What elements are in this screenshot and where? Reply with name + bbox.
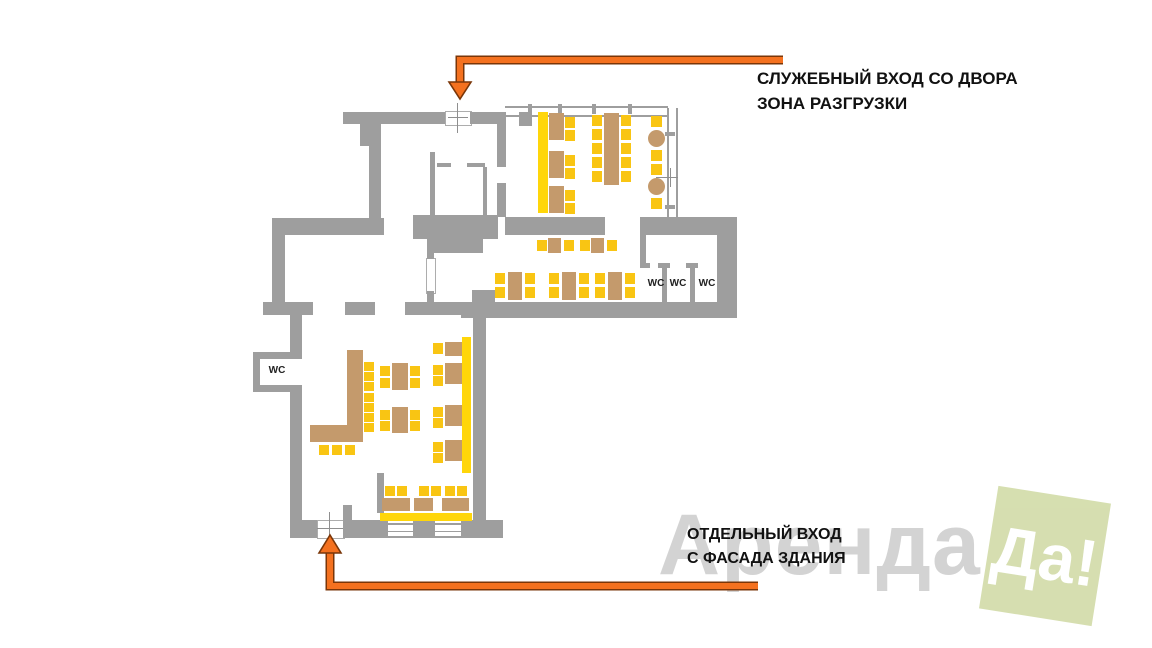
window	[435, 523, 461, 538]
wall-segment	[343, 520, 388, 538]
wall-segment	[343, 112, 445, 124]
chair-seat	[592, 157, 602, 168]
wall-segment	[497, 183, 506, 217]
dining-table	[549, 186, 564, 213]
wall-segment	[290, 520, 317, 538]
window	[388, 523, 413, 538]
dining-table	[445, 363, 462, 384]
chair-seat	[380, 366, 390, 376]
bar-counter	[310, 425, 363, 442]
dining-table	[549, 151, 564, 178]
chair-seat	[621, 157, 631, 168]
dining-table	[549, 113, 564, 140]
wall-segment	[369, 146, 381, 218]
separate-entrance-label: ОТДЕЛЬНЫЙ ВХОД С ФАСАДА ЗДАНИЯ	[687, 523, 846, 571]
main-entrance-door	[317, 520, 345, 539]
chair-seat	[564, 240, 574, 251]
wall-segment	[437, 163, 451, 167]
wall-segment	[427, 239, 483, 253]
chair-seat	[579, 273, 589, 284]
chair-seat	[380, 421, 390, 431]
chair-seat	[625, 287, 635, 298]
service-door	[445, 111, 472, 126]
dining-table	[445, 405, 462, 426]
wall-segment	[413, 520, 435, 538]
main-entrance-door-cross	[315, 528, 345, 529]
chair-seat	[385, 486, 395, 496]
chair-seat	[445, 486, 455, 496]
chair-seat	[621, 143, 631, 154]
wall-segment	[717, 235, 737, 302]
chair-seat	[565, 190, 575, 201]
chair-seat	[621, 129, 631, 140]
dining-table	[392, 363, 408, 390]
chair-seat	[565, 203, 575, 214]
chair-seat	[433, 453, 443, 463]
chair-seat	[651, 116, 662, 127]
bar-stool	[364, 362, 374, 371]
chair-seat	[397, 486, 407, 496]
dining-table	[548, 238, 561, 253]
dining-table	[591, 238, 604, 253]
wall-segment	[519, 112, 532, 126]
wall-segment	[472, 290, 495, 302]
glass-door-mark	[670, 168, 671, 187]
wc-label: WC	[253, 365, 301, 376]
bar-stool	[319, 445, 329, 455]
chair-seat	[525, 273, 535, 284]
chair-seat	[592, 129, 602, 140]
chair-seat	[651, 164, 662, 175]
wall-segment	[290, 385, 302, 538]
wall-segment	[253, 385, 301, 392]
chair-seat	[410, 366, 420, 376]
bar-stool	[364, 382, 374, 391]
chair-seat	[419, 486, 429, 496]
wc-label: WC	[644, 278, 668, 289]
dining-table	[445, 342, 462, 356]
chair-seat	[651, 198, 662, 209]
chair-seat	[433, 365, 443, 375]
wall-segment	[435, 302, 461, 315]
service-entrance-label: СЛУЖЕБНЫЙ ВХОД СО ДВОРА ЗОНА РАЗГРУЗКИ	[757, 66, 1018, 116]
wall-segment	[470, 112, 500, 124]
main-entrance-door-cross	[329, 512, 330, 547]
chair-seat	[565, 130, 575, 141]
chair-seat	[495, 287, 505, 298]
service-door-cross	[457, 103, 458, 133]
bar-stool	[345, 445, 355, 455]
wall-segment	[345, 302, 375, 315]
chair-seat	[433, 376, 443, 386]
wall-segment	[483, 167, 487, 215]
chair-seat	[380, 378, 390, 388]
wall-segment	[505, 217, 605, 235]
wall-segment	[272, 218, 384, 235]
glass-mullion-tick	[592, 104, 596, 114]
round-table	[648, 178, 665, 195]
dining-table	[508, 272, 522, 300]
dining-table	[604, 113, 619, 185]
chair-seat	[549, 287, 559, 298]
service-door-cross	[448, 117, 468, 118]
chair-seat	[525, 287, 535, 298]
wall-segment	[427, 253, 434, 259]
separate-entrance-label-line2: С ФАСАДА ЗДАНИЯ	[687, 547, 846, 571]
chair-seat	[595, 287, 605, 298]
chair-seat	[380, 410, 390, 420]
wall-segment	[461, 302, 737, 318]
chair-seat	[537, 240, 547, 251]
wall-segment	[405, 302, 435, 315]
bar-counter	[347, 350, 363, 427]
chair-seat	[433, 407, 443, 417]
separate-entrance-label-line1: ОТДЕЛЬНЫЙ ВХОД	[687, 523, 846, 547]
bar-stool	[332, 445, 342, 455]
bar-stool	[364, 403, 374, 412]
bar-stool	[364, 372, 374, 381]
dining-table	[382, 498, 410, 511]
chair-seat	[410, 378, 420, 388]
banquette-seat	[380, 513, 472, 521]
dining-table	[392, 407, 408, 433]
wall-segment	[427, 291, 434, 302]
chair-seat	[431, 486, 441, 496]
glass-mullion-tick	[628, 104, 632, 114]
glass-mullion-tick	[665, 205, 675, 209]
chair-seat	[592, 171, 602, 182]
wall-segment	[430, 152, 435, 215]
interior-door	[426, 258, 436, 294]
chair-seat	[433, 343, 443, 354]
glass-mullion-tick	[665, 132, 675, 136]
service-entrance-label-line1: СЛУЖЕБНЫЙ ВХОД СО ДВОРА	[757, 66, 1018, 91]
wc-label: WC	[666, 278, 690, 289]
bar-stool	[364, 413, 374, 422]
wall-segment	[360, 112, 381, 146]
chair-seat	[495, 273, 505, 284]
wall-segment	[263, 302, 313, 315]
chair-seat	[592, 143, 602, 154]
bar-stool	[364, 393, 374, 402]
chair-seat	[457, 486, 467, 496]
chair-seat	[433, 418, 443, 428]
round-table	[648, 130, 665, 147]
dining-table	[414, 498, 433, 511]
bar-stool	[364, 423, 374, 432]
dining-table	[442, 498, 469, 511]
wall-segment	[473, 318, 486, 525]
banquette-seat	[462, 337, 471, 473]
chair-seat	[651, 150, 662, 161]
chair-seat	[579, 287, 589, 298]
chair-seat	[621, 115, 631, 126]
wc-label: WC	[694, 278, 720, 289]
chair-seat	[410, 421, 420, 431]
glass-wall-right	[667, 108, 678, 218]
dining-table	[445, 440, 462, 461]
wall-segment	[640, 263, 650, 268]
chair-seat	[433, 442, 443, 452]
chair-seat	[607, 240, 617, 251]
wall-segment	[343, 505, 352, 520]
chair-seat	[592, 115, 602, 126]
wall-segment	[253, 352, 301, 359]
chair-seat	[549, 273, 559, 284]
chair-seat	[595, 273, 605, 284]
chair-seat	[580, 240, 590, 251]
chair-seat	[565, 117, 575, 128]
banquette-seat	[538, 112, 548, 213]
chair-seat	[410, 410, 420, 420]
chair-seat	[565, 168, 575, 179]
wall-segment	[497, 112, 506, 167]
wall-segment	[413, 215, 498, 239]
chair-seat	[621, 171, 631, 182]
wall-segment	[272, 235, 285, 302]
dining-table	[608, 272, 622, 300]
floor-plan-canvas: Аренда Да! WC WC WC WC	[0, 0, 1152, 648]
chair-seat	[565, 155, 575, 166]
dining-table	[562, 272, 576, 300]
service-entrance-label-line2: ЗОНА РАЗГРУЗКИ	[757, 91, 1018, 116]
wall-segment	[640, 217, 737, 235]
chair-seat	[625, 273, 635, 284]
